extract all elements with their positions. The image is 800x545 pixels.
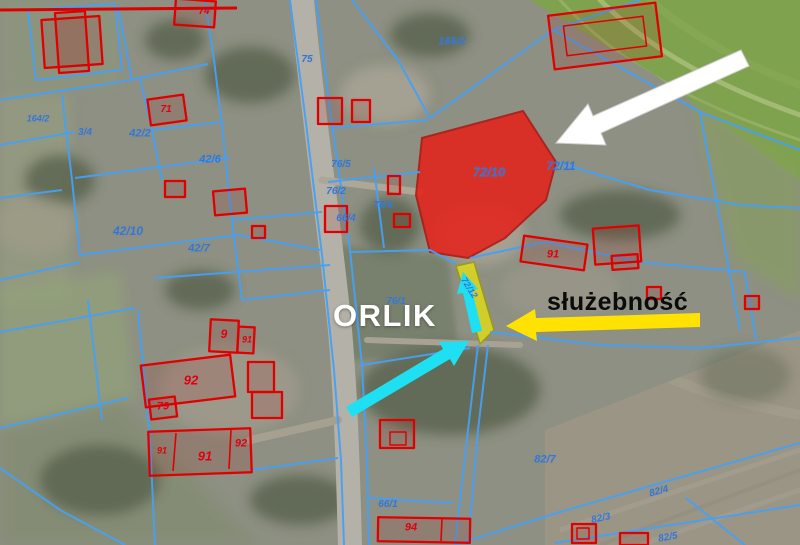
map-canvas xyxy=(0,0,800,545)
map-viewport[interactable]: ORLIK służebność 164/2165/27576/576/266/… xyxy=(0,0,800,545)
